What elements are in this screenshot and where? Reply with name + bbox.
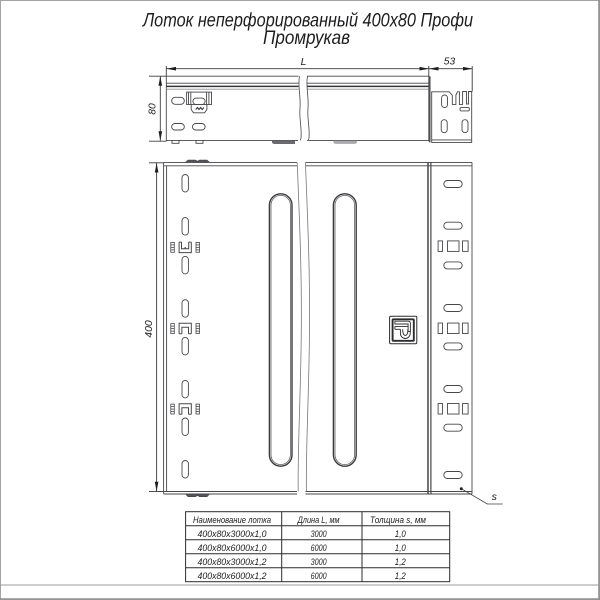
svg-text:Наименование лотка: Наименование лотка — [193, 515, 271, 526]
svg-text:3000: 3000 — [311, 529, 328, 540]
svg-text:Длина L, мм: Длина L, мм — [297, 515, 340, 526]
svg-text:80: 80 — [146, 103, 158, 115]
svg-text:Толщина s, мм: Толщина s, мм — [370, 515, 426, 526]
svg-text:1,2: 1,2 — [395, 571, 407, 582]
svg-text:Промрукав: Промрукав — [263, 28, 350, 49]
svg-text:6000: 6000 — [311, 571, 328, 582]
svg-text:1,0: 1,0 — [395, 543, 407, 554]
svg-text:1,0: 1,0 — [395, 529, 407, 540]
svg-text:400х80х3000х1,2: 400х80х3000х1,2 — [198, 557, 268, 568]
svg-text:400х80х6000х1,2: 400х80х6000х1,2 — [198, 571, 268, 582]
svg-text:400: 400 — [143, 320, 155, 338]
svg-text:6000: 6000 — [311, 543, 328, 554]
svg-text:53: 53 — [444, 56, 456, 68]
svg-text:L: L — [301, 56, 307, 68]
svg-text:1,2: 1,2 — [395, 557, 407, 568]
svg-text:400х80х6000х1,0: 400х80х6000х1,0 — [198, 543, 268, 554]
svg-text:s: s — [492, 491, 498, 503]
svg-text:400х80х3000х1,0: 400х80х3000х1,0 — [198, 529, 268, 540]
svg-text:3000: 3000 — [311, 557, 328, 568]
